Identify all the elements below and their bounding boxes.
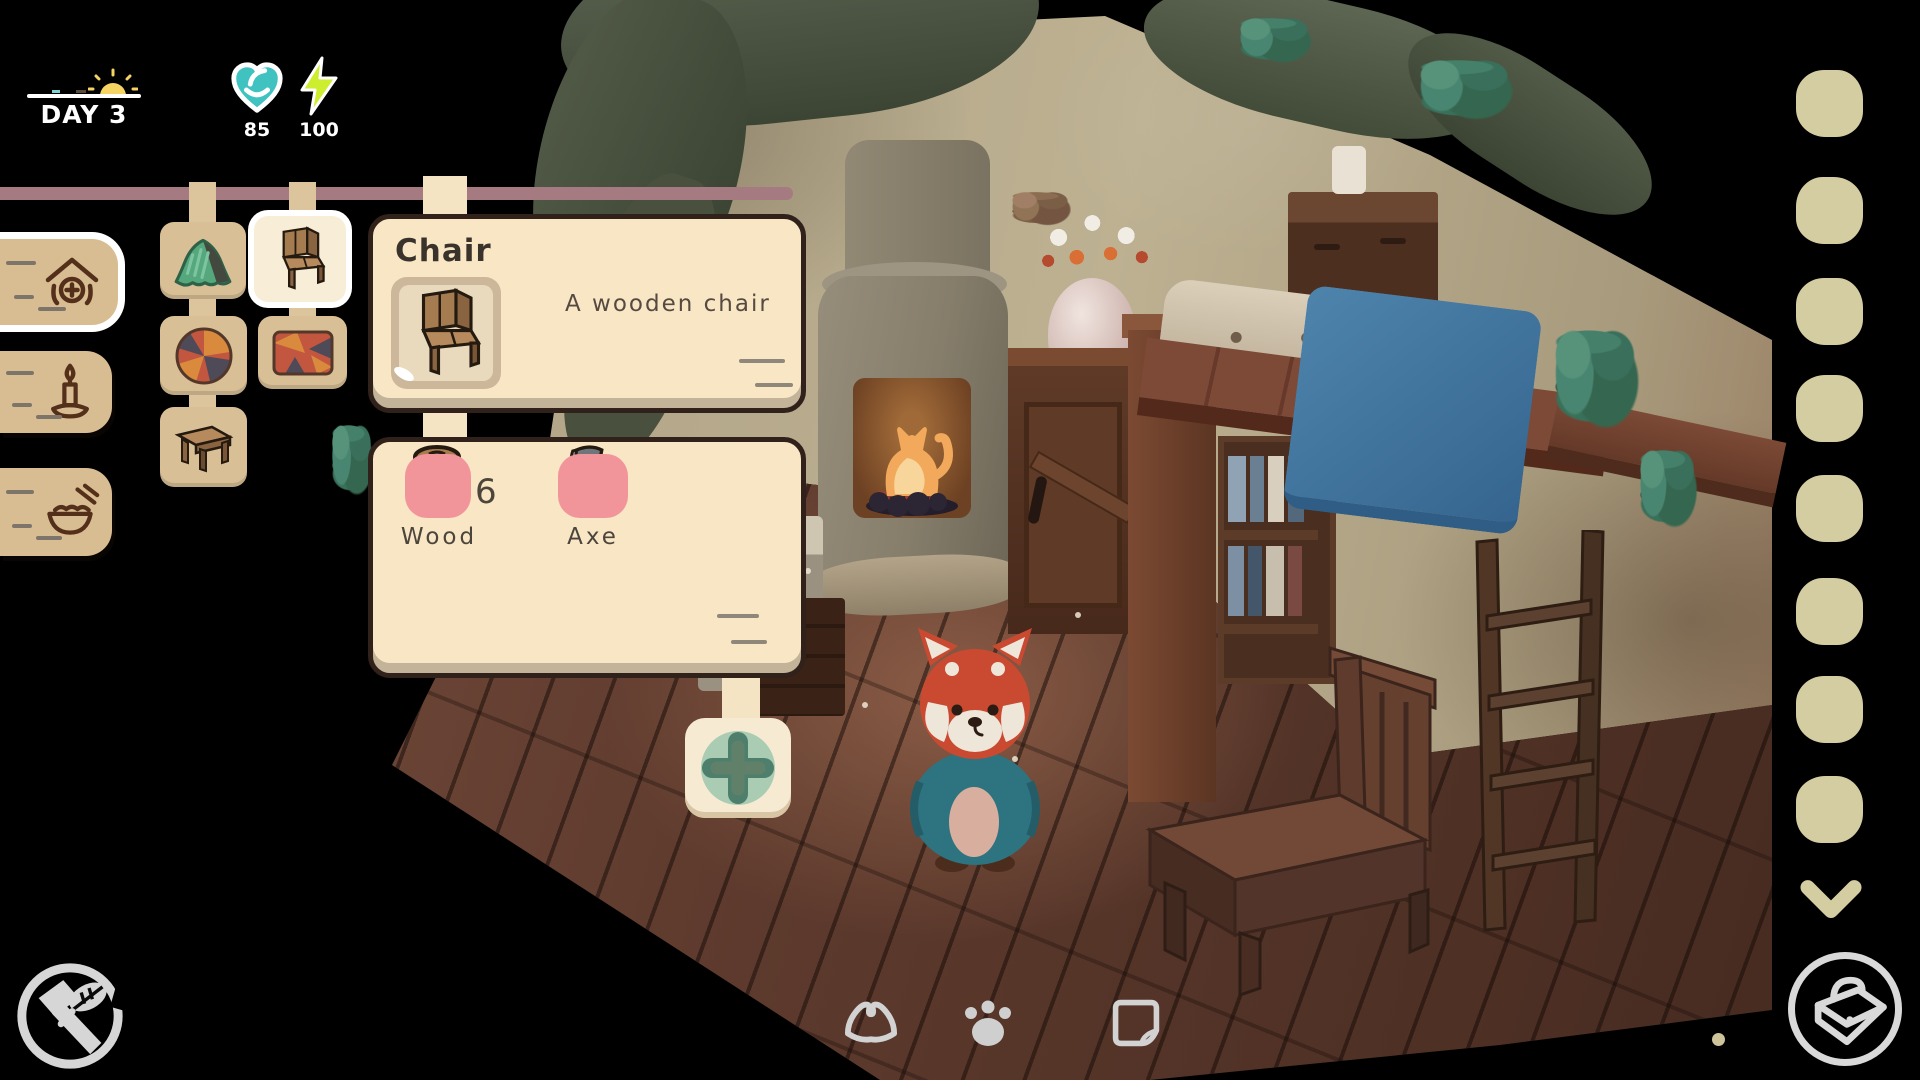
- craft-menu-bar: [0, 187, 793, 200]
- horizon-tick: [76, 90, 86, 93]
- chair-icon: [271, 226, 329, 292]
- inventory-slot[interactable]: [1796, 278, 1863, 345]
- inventory-slot[interactable]: [1796, 475, 1863, 542]
- requirement-blob: [405, 454, 471, 518]
- category-chair[interactable]: [254, 216, 346, 302]
- shelf-divider: [1224, 530, 1318, 540]
- horizon-line: [27, 94, 141, 98]
- recipe-description: A wooden chair: [565, 291, 771, 317]
- inventory-slot[interactable]: [1796, 676, 1863, 743]
- sparkle: [1012, 756, 1018, 762]
- requirement-blob: [558, 454, 628, 518]
- category-round-rug[interactable]: [160, 316, 247, 395]
- cabinet-handle: [1380, 238, 1406, 244]
- sidebar-tab-lighting[interactable]: [0, 351, 112, 433]
- ivy-cluster: [1640, 450, 1800, 710]
- decor-dash: [38, 307, 66, 311]
- decor-dash: [14, 295, 34, 299]
- fireplace-opening: [853, 378, 971, 518]
- sidebar-tab-food[interactable]: [0, 468, 112, 556]
- house-plus-icon: [40, 250, 104, 314]
- decor-dash: [739, 359, 785, 363]
- decor-dash: [6, 371, 34, 375]
- recipe-panel: Chair A wooden chair: [368, 214, 806, 413]
- day-counter: DAY 3: [28, 100, 140, 129]
- hearts-icon: [228, 60, 286, 118]
- recipe-icon-inner: [399, 285, 493, 381]
- blue-blanket: [1282, 285, 1543, 536]
- ladder: [1455, 530, 1635, 950]
- category-tent[interactable]: [160, 222, 246, 299]
- room-scene[interactable]: [0, 0, 1920, 1080]
- mattress-button: [1230, 331, 1242, 343]
- category-table[interactable]: [160, 407, 247, 487]
- requirements-panel: 6 Wood Axe: [368, 437, 806, 678]
- inventory-slot[interactable]: [1796, 70, 1863, 137]
- plus-icon: [698, 728, 778, 808]
- inventory-slot[interactable]: [1796, 177, 1863, 244]
- ivy-cluster: [1240, 18, 1440, 168]
- tent-icon: [170, 232, 236, 290]
- bag-icon: [1797, 961, 1893, 1057]
- chair-recipe-icon: [406, 288, 486, 378]
- cat-fire: [853, 378, 971, 518]
- wooden-chair: [1080, 600, 1480, 1000]
- decor-dash: [755, 383, 793, 387]
- dresser-top: [1008, 348, 1130, 368]
- decor-dash: [12, 403, 32, 407]
- energy-value: 100: [287, 119, 351, 141]
- requirement-count: 6: [475, 472, 497, 512]
- requirement-name: Axe: [535, 524, 651, 550]
- chevron-down-icon[interactable]: [1800, 878, 1862, 924]
- decor-dash: [6, 261, 36, 265]
- dresser: [1008, 366, 1130, 634]
- ivy-cluster: [1420, 60, 1680, 260]
- decor-dash: [36, 536, 62, 540]
- game-screen: DAY 3 85 100: [0, 0, 1920, 1080]
- inventory-slot[interactable]: [1796, 776, 1863, 843]
- decor-dash: [731, 640, 767, 644]
- recipe-icon-box: [391, 277, 501, 389]
- recipe-title: Chair: [395, 233, 492, 269]
- crafting-tools-icon: [14, 960, 126, 1072]
- requirement-name: Wood: [381, 524, 497, 550]
- decor-dash: [36, 415, 62, 419]
- rect-rug-icon: [271, 329, 335, 377]
- sparkle: [938, 645, 944, 651]
- crafting-button[interactable]: [14, 960, 126, 1072]
- horizon-tick: [52, 90, 60, 93]
- hearts-value: 85: [227, 119, 287, 141]
- paper-mode-icon[interactable]: [1110, 996, 1162, 1050]
- decor-dash: [12, 524, 32, 528]
- sparkle: [1075, 612, 1081, 618]
- book: [1268, 456, 1284, 522]
- decor-dash: [717, 614, 759, 618]
- decor-dash: [6, 490, 34, 494]
- book: [1250, 456, 1264, 522]
- paw-mode-icon[interactable]: [958, 995, 1018, 1051]
- category-rect-rug[interactable]: [258, 316, 347, 389]
- energy-icon: [296, 56, 342, 118]
- red-panda-character: [890, 612, 1060, 872]
- craft-add-button[interactable]: [685, 718, 791, 818]
- food-bowl-icon: [40, 480, 100, 544]
- book: [1228, 456, 1246, 522]
- inventory-slot[interactable]: [1796, 375, 1863, 442]
- notification-dot: [1712, 1033, 1725, 1046]
- table-icon: [172, 417, 236, 477]
- bag-button[interactable]: [1788, 952, 1902, 1066]
- round-rug-icon: [174, 326, 234, 386]
- sparkle: [862, 702, 868, 708]
- sidebar-tab-build[interactable]: [0, 239, 118, 325]
- tent-mode-icon[interactable]: [842, 993, 900, 1047]
- cabinet-handle: [1314, 244, 1340, 250]
- inventory-slot[interactable]: [1796, 578, 1863, 645]
- sunrise-icon: [88, 68, 138, 96]
